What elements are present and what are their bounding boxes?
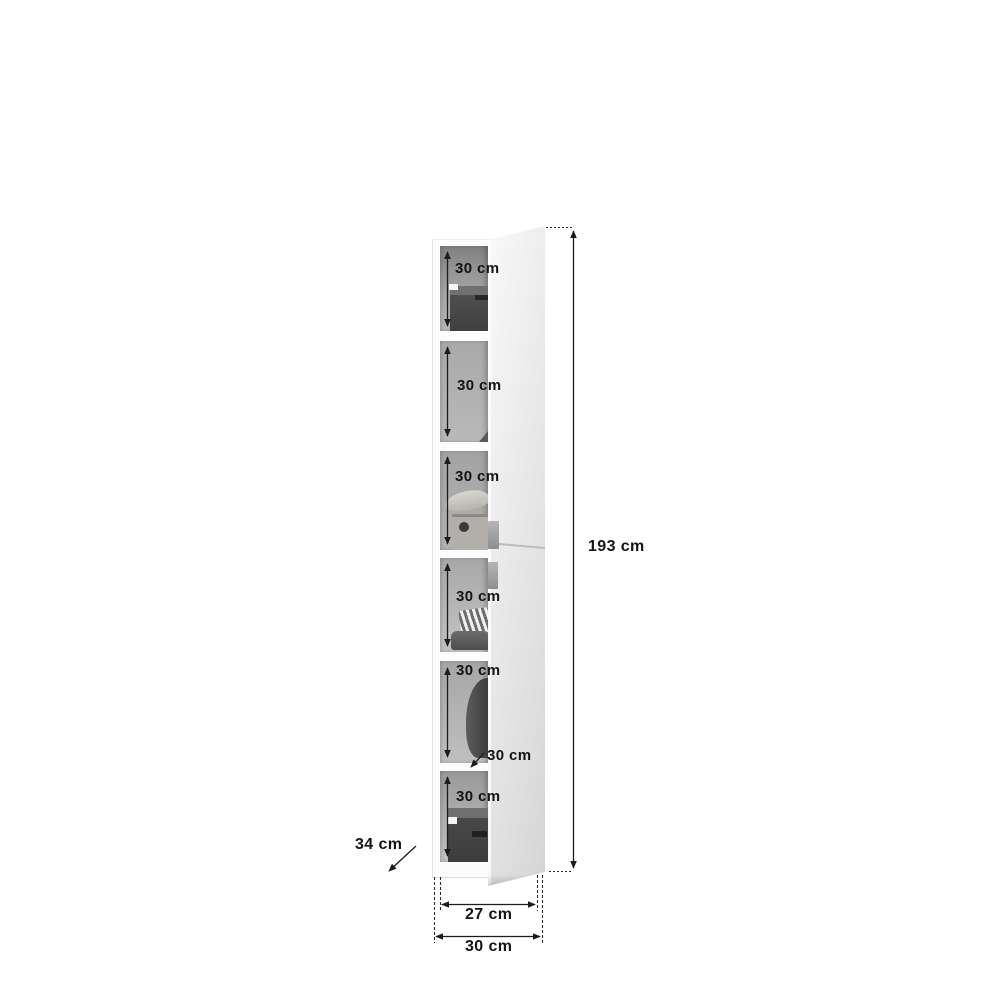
- shelf-pointer-label: 30 cm: [487, 748, 532, 763]
- box-handle-slot: [475, 295, 488, 300]
- comp3-height-label: 30 cm: [455, 469, 500, 484]
- dark-bag: [466, 678, 488, 758]
- compartment-6: [440, 771, 488, 862]
- outer-width-label: 30 cm: [465, 939, 512, 955]
- compartment-4: [440, 558, 488, 652]
- dark-cushion: [451, 631, 488, 650]
- depth-label: 34 cm: [355, 837, 402, 853]
- comp2-height-label: 30 cm: [457, 378, 502, 393]
- box-label-chip: [449, 284, 458, 290]
- comp1-height-label: 30 cm: [455, 261, 500, 276]
- compartment-1: [440, 246, 488, 331]
- box-handle-slot: [472, 831, 487, 837]
- total-height-label: 193 cm: [588, 539, 645, 555]
- storage-box: [450, 286, 488, 331]
- box-with-hole: [452, 514, 488, 550]
- folded-blanket: [444, 488, 488, 514]
- box-label-chip: [447, 817, 457, 824]
- upper-door-handle: [488, 521, 499, 549]
- storage-box: [448, 808, 488, 862]
- lower-door-handle: [488, 562, 498, 589]
- mirror-door: [488, 226, 545, 886]
- compartment-3: [440, 451, 488, 550]
- comp6-height-label: 30 cm: [456, 789, 501, 804]
- comp5-height-label: 30 cm: [456, 663, 501, 678]
- finger-hole: [459, 522, 469, 532]
- door-edge-highlight: [488, 226, 491, 886]
- inner-width-label: 27 cm: [465, 907, 512, 923]
- comp4-height-label: 30 cm: [456, 589, 501, 604]
- furniture-dimension-diagram: 30 cm 30 cm 30 cm 30 cm 30 cm 30 cm 30 c…: [0, 0, 984, 984]
- corner-object: [479, 431, 488, 442]
- door-bottom-edge: [488, 874, 545, 886]
